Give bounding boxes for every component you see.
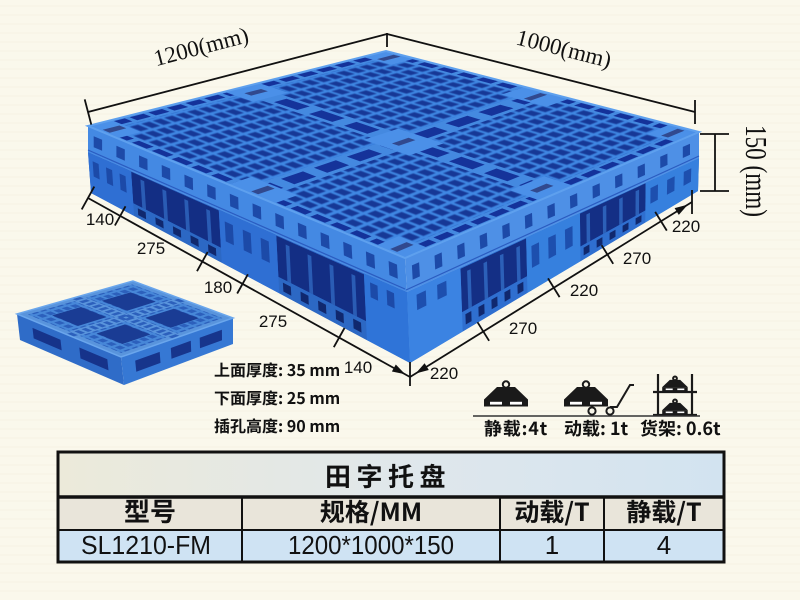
svg-text:4: 4: [657, 530, 671, 560]
svg-text:140: 140: [344, 358, 372, 377]
svg-text:140: 140: [86, 210, 114, 229]
svg-text:1: 1: [545, 530, 559, 560]
svg-text:150 (mm): 150 (mm): [739, 125, 774, 217]
svg-text:270: 270: [509, 319, 537, 338]
svg-text:275: 275: [259, 312, 287, 331]
svg-text:270: 270: [623, 249, 651, 268]
svg-text:220: 220: [570, 281, 598, 300]
svg-text:220: 220: [672, 217, 700, 236]
svg-text:180: 180: [204, 278, 232, 297]
svg-text:275: 275: [137, 239, 165, 258]
svg-text:220: 220: [430, 364, 458, 383]
svg-text:1200*1000*150: 1200*1000*150: [288, 530, 454, 560]
svg-text:SL1210-FM: SL1210-FM: [81, 530, 211, 560]
